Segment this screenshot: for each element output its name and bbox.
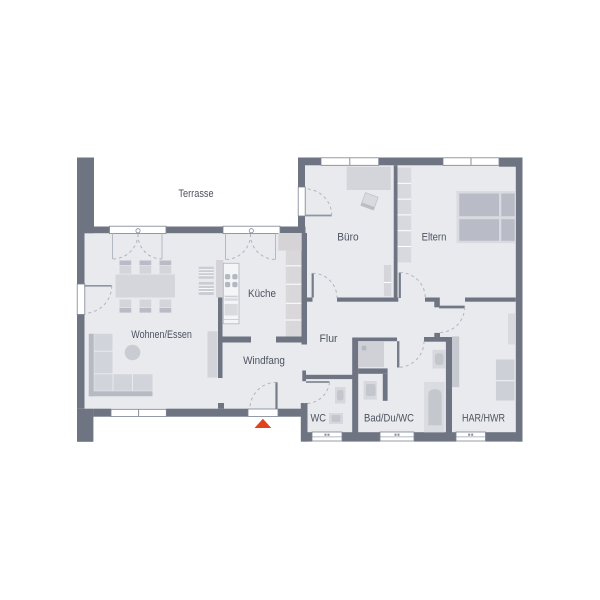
svg-text:Windfang: Windfang [243, 355, 285, 367]
svg-text:Eltern: Eltern [422, 232, 447, 244]
svg-text:Bad/Du/WC: Bad/Du/WC [364, 413, 414, 425]
svg-text:Terrasse: Terrasse [178, 188, 213, 200]
svg-text:Wohnen/Essen: Wohnen/Essen [131, 329, 192, 341]
svg-text:Flur: Flur [320, 333, 338, 345]
svg-text:WC: WC [310, 413, 326, 425]
svg-text:HAR/HWR: HAR/HWR [462, 413, 505, 425]
svg-text:Küche: Küche [248, 288, 276, 300]
svg-text:Büro: Büro [337, 232, 358, 244]
